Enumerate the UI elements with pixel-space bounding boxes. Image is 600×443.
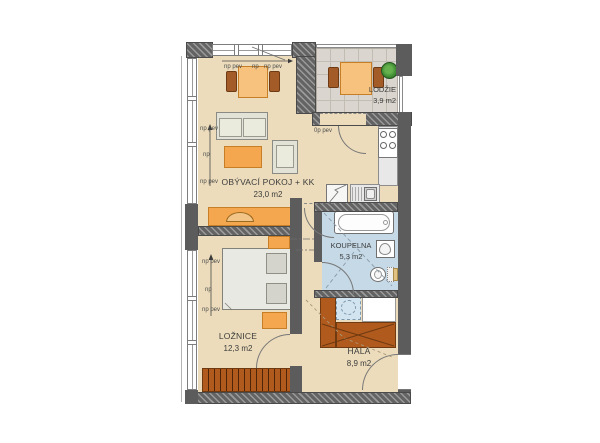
armchair-cushion	[276, 145, 294, 168]
window-top	[212, 44, 292, 56]
wall-left-bottom-corner	[185, 390, 198, 404]
stove-burner	[380, 142, 387, 149]
entrance-opening	[398, 354, 411, 390]
wall-living-bedroom	[198, 226, 302, 236]
bedroom-wardrobe	[202, 368, 292, 392]
window-mullion	[187, 142, 197, 147]
tv-cabinet	[208, 207, 300, 226]
toilet-bowl-inner	[374, 270, 382, 279]
washbasin-bowl	[379, 243, 391, 255]
stove-burner	[380, 131, 387, 138]
corridor-door-opening-line	[304, 203, 334, 204]
window-mullion	[187, 96, 197, 101]
sink-bowl-inner	[366, 189, 375, 199]
nightstand-bottom	[262, 312, 287, 329]
wall-loggia-right-corner	[396, 44, 412, 76]
window-annotation: np pev	[200, 179, 218, 185]
window-annotation: np pev	[202, 307, 220, 313]
loggia-railing-right	[399, 76, 403, 114]
hall-label: HALA	[328, 346, 390, 356]
facade-outer-line	[181, 56, 182, 402]
wall-bottom	[186, 392, 411, 404]
wall-right	[398, 112, 411, 354]
loggia-label: LODŽIE	[348, 85, 396, 94]
living-room-area: 23,0 m2	[198, 190, 338, 199]
living-room-label: OBÝVACÍ POKOJ + KK	[198, 177, 338, 187]
bedroom-area: 12,3 m2	[206, 344, 270, 353]
loggia-area: 3,9 m2	[348, 96, 396, 105]
wall-top-left-corner	[186, 42, 213, 58]
bedroom-label: LOŽNICE	[206, 331, 270, 341]
window-left-living	[187, 58, 197, 204]
sofa-cushion	[243, 118, 266, 137]
loggia-chair-left	[328, 67, 339, 88]
bedroom-door-opening	[290, 334, 302, 366]
loggia-door-annotation: 0p pev	[314, 128, 332, 134]
window-annotation: np pev	[224, 64, 242, 70]
wall-loggia-left	[296, 56, 316, 114]
window-annotation: np pev	[264, 64, 282, 70]
window-annotation: np	[252, 64, 259, 70]
wall-bedroom-right-lower	[290, 366, 302, 392]
loggia-door-opening	[320, 113, 366, 125]
hall-wardrobe-horizontal	[336, 322, 396, 348]
bathtub-drain	[383, 220, 388, 225]
window-annotation: np	[203, 152, 210, 158]
dining-table	[238, 66, 268, 98]
window-mullion	[187, 340, 197, 345]
window-mullion	[258, 44, 263, 56]
wall-bedroom-right-upper	[290, 198, 302, 334]
pillow	[266, 253, 287, 274]
sofa-cushion	[219, 118, 242, 137]
loggia-railing-top	[316, 44, 398, 48]
wall-left-middle	[185, 204, 198, 250]
stove-burner	[389, 131, 396, 138]
coffee-table	[224, 146, 262, 168]
bathroom-door-opening	[314, 262, 322, 290]
sink-drainer	[352, 187, 363, 201]
nightstand-top	[268, 236, 290, 249]
window-mullion	[234, 44, 239, 56]
dining-chair-left	[226, 71, 237, 92]
window-annotation: np pev	[200, 126, 218, 132]
dining-chair-right	[269, 71, 280, 92]
bathroom-label: KOUPELNA	[322, 241, 380, 250]
hall-wardrobe-vertical	[320, 296, 336, 348]
floor-plan: OBÝVACÍ POKOJ + KK 23,0 m2 LODŽIE 3,9 m2…	[0, 0, 600, 443]
window-annotation: np pev	[202, 259, 220, 265]
washing-machine-drum	[341, 300, 356, 315]
pillow	[266, 283, 287, 304]
stove-burner	[389, 142, 396, 149]
window-mullion	[187, 296, 197, 301]
window-annotation: np	[205, 287, 212, 293]
window-left-bedroom	[187, 250, 197, 390]
hall-area: 8,9 m2	[328, 359, 390, 368]
bathroom-area: 5,3 m2	[322, 252, 380, 261]
hall-niche	[362, 294, 396, 322]
